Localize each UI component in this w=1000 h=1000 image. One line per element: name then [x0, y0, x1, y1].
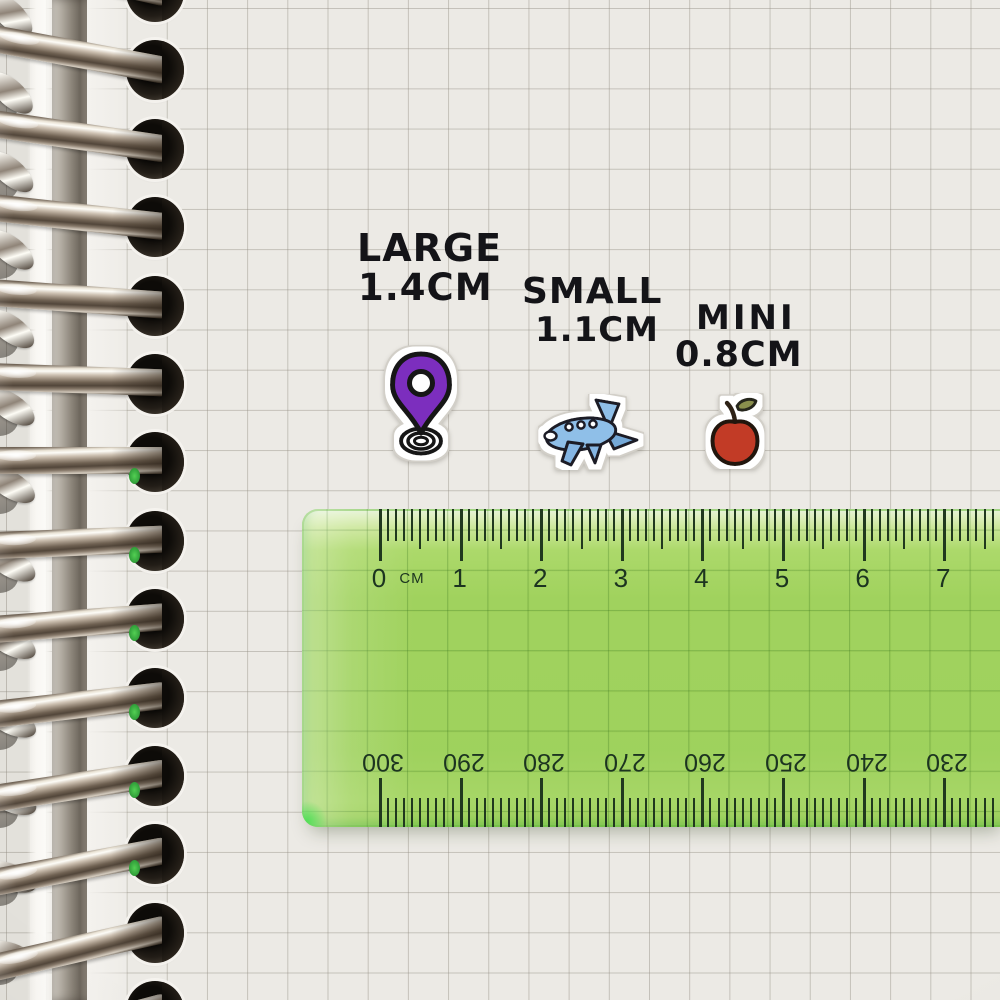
plane-window [577, 421, 584, 428]
ruler-tick-top [943, 509, 946, 561]
ruler-tick-top [758, 509, 760, 541]
ruler-tick-top [774, 509, 776, 541]
ruler-tick-bottom [806, 798, 808, 827]
ruler-tick-top [709, 509, 711, 541]
ruler-tick-bottom [621, 778, 624, 827]
ruler-tick-top [379, 509, 382, 561]
ruler-tick-bottom [556, 798, 558, 827]
ruler-tick-top [427, 509, 429, 541]
ruler-tick-bottom [863, 778, 866, 827]
label-small-size: 1.1CM [535, 313, 659, 347]
ruler-tick-top [750, 509, 752, 541]
ruler-tick-top [589, 509, 591, 541]
ruler-tick-bottom [524, 798, 526, 827]
ruler-tick-top [967, 509, 969, 541]
ruler-tick-bottom [967, 798, 969, 827]
ruler-tick-top [935, 509, 937, 541]
ruler-tick-bottom [951, 798, 953, 827]
ruler-tick-bottom [822, 798, 824, 827]
ruler-tick-top [677, 509, 679, 541]
ruler-tick-top [790, 509, 792, 541]
ruler-tick-bottom [726, 798, 728, 827]
ruler-mm-number: 300 [362, 747, 404, 776]
ruler-tick-top [564, 509, 566, 541]
plane-nose [545, 432, 557, 441]
location-pin-sticker [382, 341, 460, 465]
ruler-tick-top [734, 509, 736, 541]
ruler-tick-top [903, 509, 905, 549]
ruler-tick-bottom [484, 798, 486, 827]
ruler-tick-bottom [379, 778, 382, 827]
ruler-tick-bottom [645, 798, 647, 827]
ruler-tick-bottom [701, 778, 704, 827]
ruler-tick-top [653, 509, 655, 541]
ruler-tick-bottom [435, 798, 437, 827]
ruler-tick-bottom [685, 798, 687, 827]
ruler-sheen [302, 509, 1000, 827]
ruler-tick-bottom [613, 798, 615, 827]
ruler-tick-top [460, 509, 463, 561]
ruler-tick-bottom [460, 778, 463, 827]
ruler-tick-top [701, 509, 704, 561]
ruler-tick-top [911, 509, 913, 541]
ruler-tick-bottom [411, 798, 413, 827]
plane-window [589, 420, 596, 427]
ruler-mm-number: 280 [523, 747, 565, 776]
ruler-tick-top [476, 509, 478, 541]
ruler-tick-bottom [798, 798, 800, 827]
ruler-tick-top [782, 509, 785, 561]
ruler-tick-top [830, 509, 832, 541]
ruler-mm-number: 290 [443, 747, 485, 776]
ruler-tick-bottom [629, 798, 631, 827]
label-large-name: LARGE [357, 229, 502, 267]
plane-rear-flap [587, 445, 601, 463]
ruler-unit-label: CM [399, 570, 424, 587]
ruler-tick-bottom [734, 798, 736, 827]
ruler-tick-top [693, 509, 695, 541]
ruler-tick-top [645, 509, 647, 541]
ruler-tick-bottom [492, 798, 494, 827]
ruler-tick-bottom [814, 798, 816, 827]
ruler-tick-top [637, 509, 639, 541]
ruler-tick-top [984, 509, 986, 549]
ruler-tick-bottom [452, 798, 454, 827]
ruler-tick-bottom [669, 798, 671, 827]
ruler-tick-top [951, 509, 953, 541]
ruler-tick-bottom [548, 798, 550, 827]
ruler-tick-bottom [903, 798, 905, 827]
ruler-tick-bottom [564, 798, 566, 827]
ruler-tick-bottom [895, 798, 897, 827]
ruler-tick-bottom [427, 798, 429, 827]
ruler-tick-bottom [403, 798, 405, 827]
ruler-cm-number: 5 [775, 563, 789, 594]
ruler-tick-bottom [677, 798, 679, 827]
ruler-tick-bottom [846, 798, 848, 827]
ruler-tick-top [581, 509, 583, 549]
ruler-tick-bottom [984, 798, 986, 827]
ruler-reflection-glint [129, 547, 140, 563]
ruler-tick-top [468, 509, 470, 541]
ruler-tick-bottom [597, 798, 599, 827]
ruler-cm-number: 4 [694, 563, 708, 594]
ruler-tick-top [718, 509, 720, 541]
ruler-tick-bottom [992, 798, 994, 827]
ruler-tick-bottom [838, 798, 840, 827]
ruler-tick-bottom [766, 798, 768, 827]
ruler-tick-bottom [419, 798, 421, 827]
ruler-tick-top [492, 509, 494, 541]
ruler-tick-bottom [387, 798, 389, 827]
ruler-tick-bottom [540, 778, 543, 827]
ruler-tick-bottom [919, 798, 921, 827]
notebook-page: LARGE 1.4CM SMALL 1.1CM MINI 0.8CM [0, 0, 1000, 1000]
ruler-tick-top [508, 509, 510, 541]
ruler-tick-top [500, 509, 502, 549]
ruler-tick-top [572, 509, 574, 541]
label-mini-size: 0.8CM [675, 338, 803, 373]
ruler-tick-top [548, 509, 550, 541]
ruler-tick-top [814, 509, 816, 541]
ruler-tick-bottom [911, 798, 913, 827]
ruler-tick-bottom [927, 798, 929, 827]
ruler-mm-number: 230 [926, 747, 968, 776]
ruler-tick-bottom [581, 798, 583, 827]
ruler-tick-top [556, 509, 558, 541]
ruler-tick-bottom [887, 798, 889, 827]
ruler-reflection-glint [129, 782, 140, 798]
ruler-tick-bottom [935, 798, 937, 827]
ruler-tick-top [871, 509, 873, 541]
ruler-tick-top [443, 509, 445, 541]
ruler-tick-bottom [516, 798, 518, 827]
ruler: 01234567 CM 300290280270260250240230 [302, 509, 1000, 827]
ruler-tick-bottom [742, 798, 744, 827]
ruler-cm-number: 2 [533, 563, 547, 594]
label-large-size: 1.4CM [358, 269, 493, 306]
ruler-tick-top [806, 509, 808, 541]
ruler-tick-bottom [443, 798, 445, 827]
ruler-tick-top [419, 509, 421, 549]
ruler-tick-top [726, 509, 728, 541]
ruler-tick-top [846, 509, 848, 541]
pin-center-dot [410, 372, 433, 395]
ruler-tick-top [621, 509, 624, 561]
ruler-tick-top [395, 509, 397, 541]
ruler-tick-top [484, 509, 486, 541]
ruler-tick-bottom [637, 798, 639, 827]
ruler-cm-number: 6 [855, 563, 869, 594]
ruler-tick-top [540, 509, 543, 561]
ruler-tick-bottom [589, 798, 591, 827]
ruler-tick-bottom [758, 798, 760, 827]
ruler-tick-bottom [855, 798, 857, 827]
ruler-tick-bottom [830, 798, 832, 827]
ruler-tick-bottom [693, 798, 695, 827]
ruler-tick-bottom [395, 798, 397, 827]
ruler-mm-number: 250 [765, 747, 807, 776]
ruler-tick-bottom [572, 798, 574, 827]
ruler-tick-top [919, 509, 921, 541]
ruler-cm-number: 7 [936, 563, 950, 594]
ruler-tick-top [516, 509, 518, 541]
ruler-tick-top [387, 509, 389, 541]
binder-ring [0, 447, 174, 474]
airplane-sticker [538, 394, 644, 470]
ruler-tick-top [524, 509, 526, 541]
label-mini-name: MINI [696, 301, 796, 335]
ruler-tick-bottom [774, 798, 776, 827]
ruler-tick-top [669, 509, 671, 541]
ruler-cm-number: 0 [372, 563, 386, 594]
ruler-tick-top [887, 509, 889, 541]
ruler-tick-top [975, 509, 977, 541]
ruler-tick-bottom [476, 798, 478, 827]
ruler-tick-top [927, 509, 929, 541]
ruler-tick-bottom [879, 798, 881, 827]
ruler-tick-bottom [468, 798, 470, 827]
ruler-tick-top [822, 509, 824, 549]
ruler-tick-top [661, 509, 663, 549]
apple-stem [727, 403, 735, 421]
ruler-tick-top [992, 509, 994, 541]
ruler-tick-top [605, 509, 607, 541]
ruler-tick-top [766, 509, 768, 541]
ruler-tick-top [452, 509, 454, 541]
ruler-tick-top [863, 509, 866, 561]
ruler-tick-top [411, 509, 413, 541]
ruler-mm-number: 240 [846, 747, 888, 776]
ruler-tick-top [798, 509, 800, 541]
apple-leaf [737, 399, 756, 410]
apple-sticker [705, 393, 765, 469]
ruler-tick-top [685, 509, 687, 541]
ruler-tick-bottom [605, 798, 607, 827]
ruler-tick-bottom [718, 798, 720, 827]
apple-body [713, 421, 758, 464]
ruler-tick-bottom [653, 798, 655, 827]
ruler-tick-top [403, 509, 405, 541]
ruler-mm-number: 270 [604, 747, 646, 776]
ruler-tick-top [435, 509, 437, 541]
ruler-tick-top [959, 509, 961, 541]
ruler-tick-top [879, 509, 881, 541]
ruler-tick-bottom [959, 798, 961, 827]
ruler-cm-number: 3 [614, 563, 628, 594]
ruler-tick-bottom [532, 798, 534, 827]
ruler-mm-number: 260 [685, 747, 727, 776]
ruler-cm-number: 1 [452, 563, 466, 594]
label-small-name: SMALL [522, 274, 663, 310]
ruler-tick-top [895, 509, 897, 541]
ruler-tick-top [742, 509, 744, 549]
ruler-tick-bottom [750, 798, 752, 827]
ruler-tick-top [613, 509, 615, 541]
ruler-tick-top [629, 509, 631, 541]
ruler-reflection-glint [129, 704, 140, 720]
ruler-tick-bottom [508, 798, 510, 827]
ruler-tick-bottom [782, 778, 785, 827]
ruler-tick-bottom [975, 798, 977, 827]
ruler-tick-bottom [790, 798, 792, 827]
ruler-tick-bottom [943, 778, 946, 827]
ruler-tick-top [855, 509, 857, 541]
ruler-tick-top [838, 509, 840, 541]
plane-window [565, 423, 572, 430]
ruler-tick-top [532, 509, 534, 541]
ruler-tick-bottom [500, 798, 502, 827]
ruler-tick-bottom [871, 798, 873, 827]
ruler-tick-top [597, 509, 599, 541]
ruler-tick-bottom [709, 798, 711, 827]
ruler-tick-bottom [661, 798, 663, 827]
